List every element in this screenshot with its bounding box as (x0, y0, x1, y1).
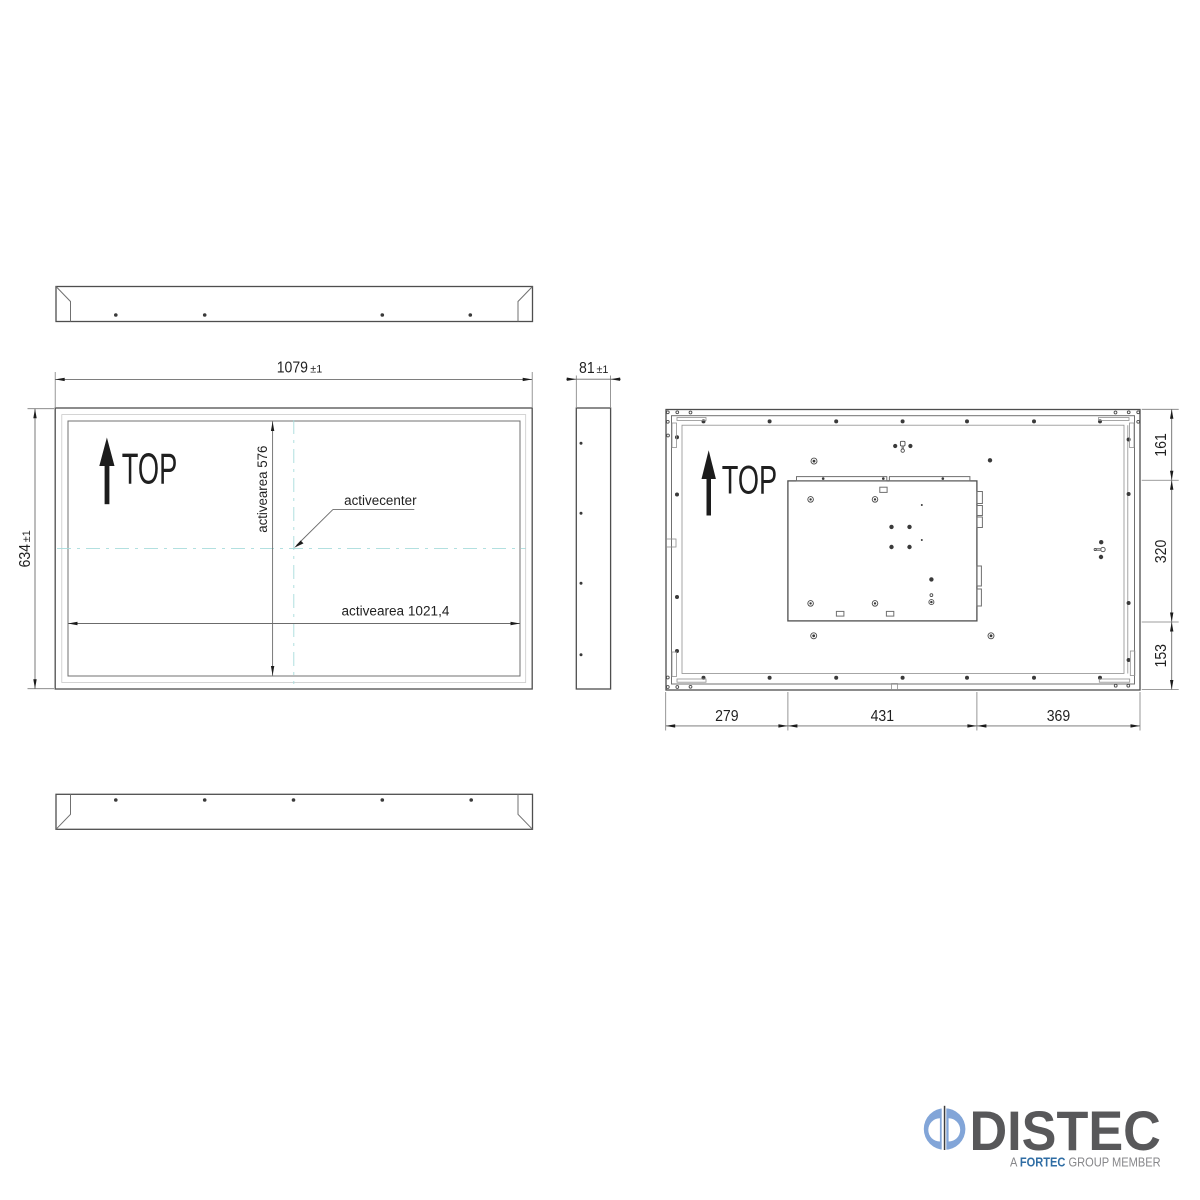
svg-text:±1: ±1 (310, 364, 322, 376)
svg-text:±1: ±1 (21, 530, 33, 542)
svg-text:634: 634 (16, 544, 34, 567)
svg-text:1079: 1079 (277, 359, 308, 377)
svg-text:81: 81 (579, 359, 595, 377)
svg-text:TOP: TOP (122, 444, 178, 493)
svg-text:DISTEC: DISTEC (970, 1101, 1161, 1163)
svg-text:161: 161 (1152, 433, 1170, 456)
svg-text:activearea 1021,4: activearea 1021,4 (342, 603, 450, 618)
svg-text:431: 431 (871, 707, 894, 725)
svg-text:279: 279 (715, 707, 738, 725)
svg-text:369: 369 (1047, 707, 1070, 725)
svg-text:TOP: TOP (722, 458, 777, 502)
svg-text:±1: ±1 (597, 364, 609, 376)
svg-text:320: 320 (1152, 540, 1170, 563)
svg-text:A FORTEC GROUP MEMBER: A FORTEC GROUP MEMBER (1010, 1155, 1161, 1170)
svg-text:activecenter: activecenter (344, 493, 417, 508)
svg-text:153: 153 (1152, 644, 1170, 667)
svg-text:activearea 576: activearea 576 (254, 446, 269, 533)
